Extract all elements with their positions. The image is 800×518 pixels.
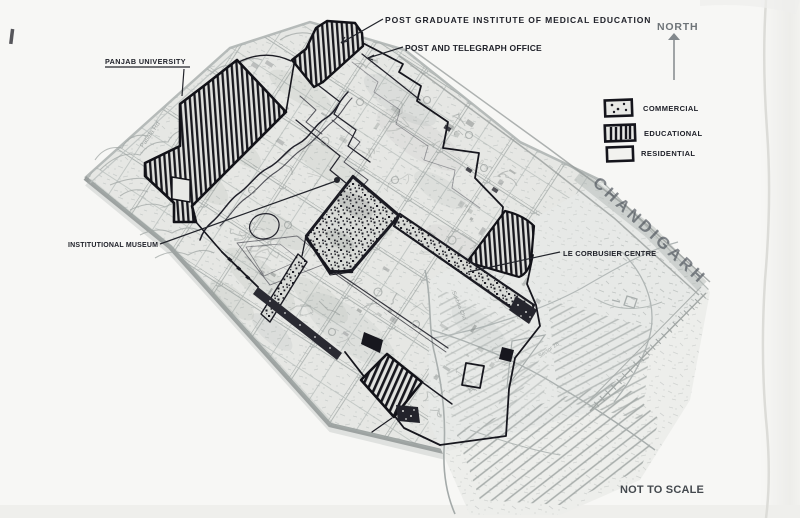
svg-text:INSTITUTIONAL MUSEUM: INSTITUTIONAL MUSEUM bbox=[68, 242, 158, 249]
svg-text:LE CORBUSIER CENTRE: LE CORBUSIER CENTRE bbox=[563, 249, 656, 258]
svg-text:NOT TO SCALE: NOT TO SCALE bbox=[620, 484, 704, 496]
svg-text:NORTH: NORTH bbox=[657, 21, 698, 33]
svg-text:POST GRADUATE INSTITUTE OF MED: POST GRADUATE INSTITUTE OF MEDICAL EDUCA… bbox=[385, 15, 651, 25]
svg-text:COMMERCIAL: COMMERCIAL bbox=[643, 104, 699, 113]
svg-text:EDUCATIONAL: EDUCATIONAL bbox=[644, 129, 702, 138]
svg-text:POST AND TELEGRAPH OFFICE: POST AND TELEGRAPH OFFICE bbox=[405, 43, 542, 53]
svg-text:PANJAB UNIVERSITY: PANJAB UNIVERSITY bbox=[105, 57, 186, 66]
svg-text:RESIDENTIAL: RESIDENTIAL bbox=[641, 149, 695, 158]
